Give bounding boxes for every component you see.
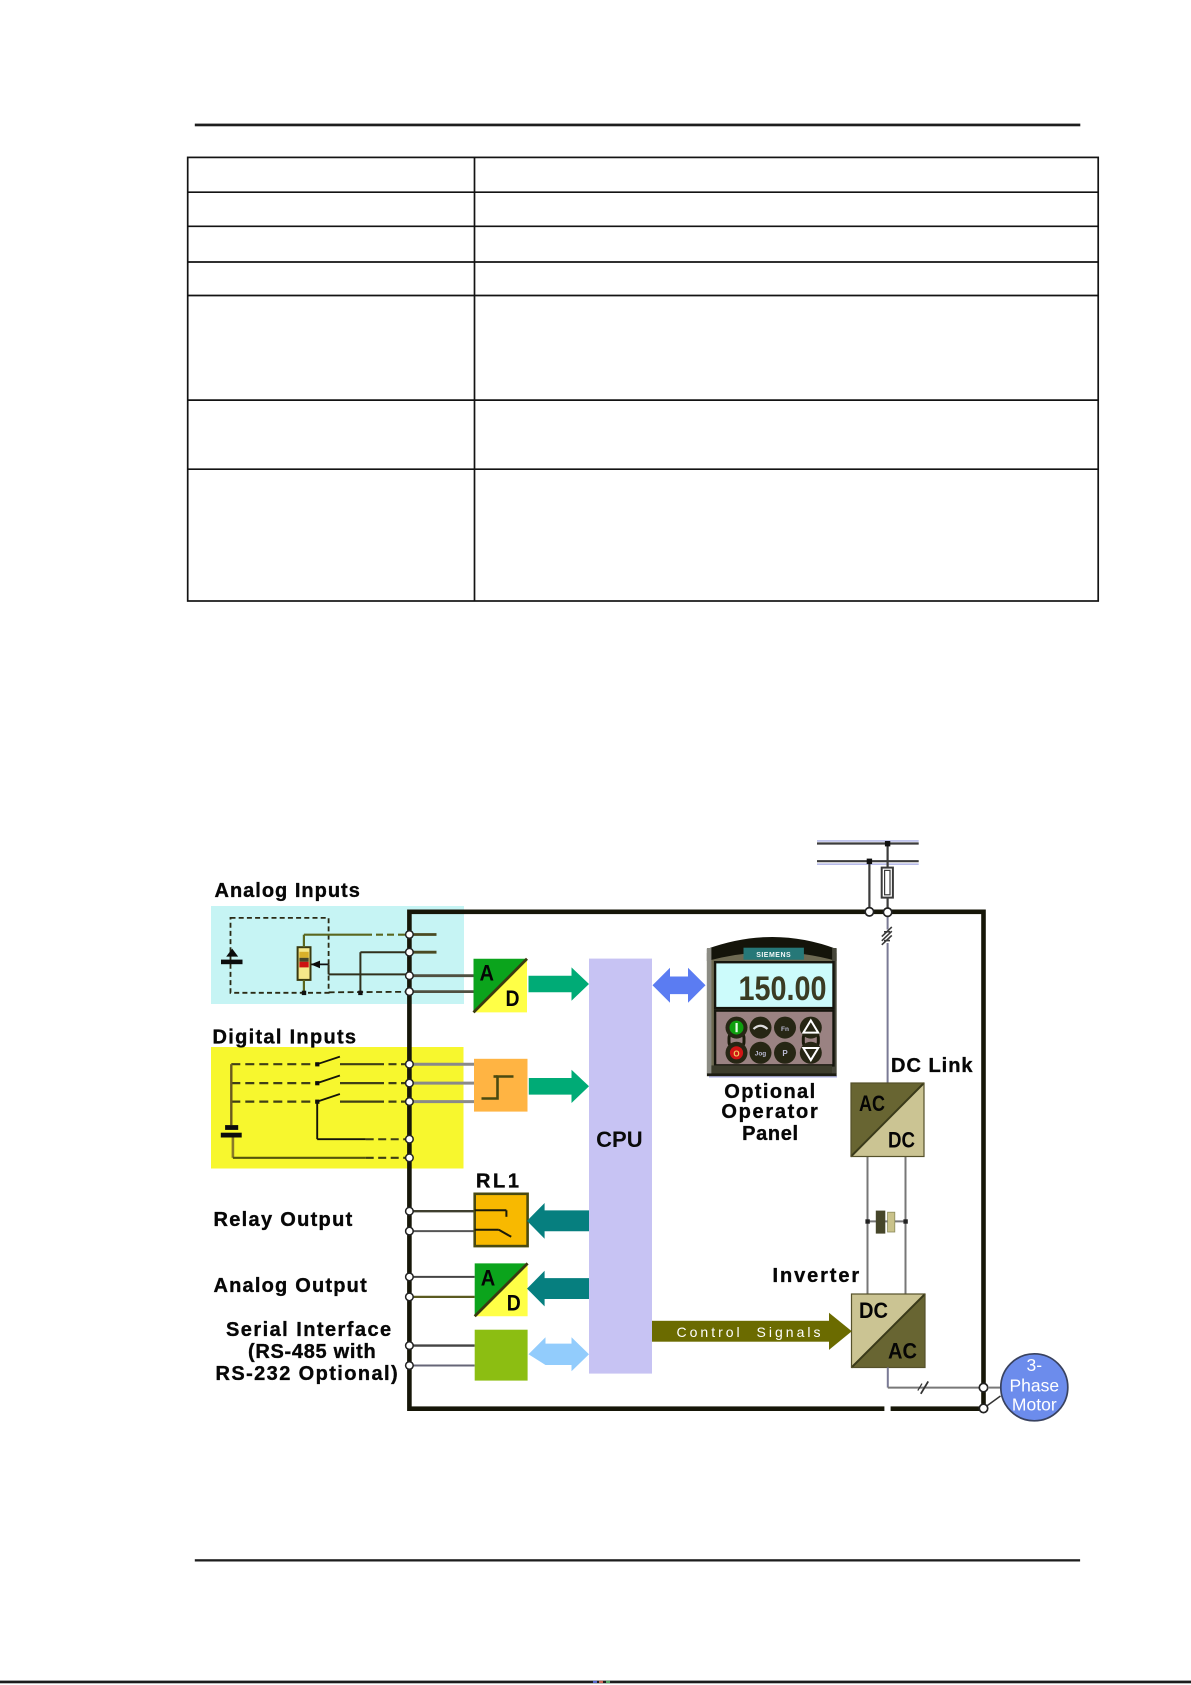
svg-text:Fn: Fn (781, 1026, 789, 1033)
svg-text:RL1: RL1 (476, 1171, 522, 1193)
svg-text:150.00: 150.00 (739, 970, 827, 1008)
svg-text:A: A (481, 1265, 496, 1290)
svg-text:Motor: Motor (1012, 1395, 1057, 1415)
svg-text:Inverter: Inverter (773, 1265, 862, 1287)
svg-text:(RS-485 with: (RS-485 with (248, 1341, 376, 1363)
svg-text:DC Link: DC Link (891, 1055, 974, 1077)
svg-text:D: D (507, 1291, 521, 1316)
svg-text:Serial Interface: Serial Interface (226, 1319, 393, 1341)
svg-text:RS-232 Optional): RS-232 Optional) (216, 1363, 400, 1385)
svg-text:Jog: Jog (755, 1051, 767, 1058)
svg-text:A: A (480, 961, 495, 986)
svg-text:DC: DC (859, 1298, 888, 1323)
svg-text:Operator: Operator (721, 1101, 819, 1123)
svg-text:Analog Inputs: Analog Inputs (215, 880, 361, 902)
svg-text:3-: 3- (1027, 1355, 1043, 1375)
svg-text:Control Signals: Control Signals (677, 1324, 824, 1340)
svg-text:Optional: Optional (724, 1081, 816, 1103)
svg-text:Relay Output: Relay Output (214, 1209, 354, 1231)
svg-text:Phase: Phase (1009, 1376, 1059, 1396)
svg-text:P: P (782, 1049, 788, 1058)
svg-text:Analog Output: Analog Output (214, 1275, 368, 1297)
svg-text:CPU: CPU (596, 1127, 642, 1152)
svg-text:SIEMENS: SIEMENS (756, 952, 791, 959)
svg-text:DC: DC (888, 1128, 915, 1153)
svg-text:AC: AC (859, 1091, 885, 1116)
svg-text:AC: AC (888, 1339, 917, 1364)
svg-text:Panel: Panel (742, 1123, 799, 1145)
svg-text:D: D (506, 986, 520, 1011)
svg-text:Digital Inputs: Digital Inputs (213, 1027, 358, 1049)
svg-text:O: O (733, 1050, 739, 1059)
